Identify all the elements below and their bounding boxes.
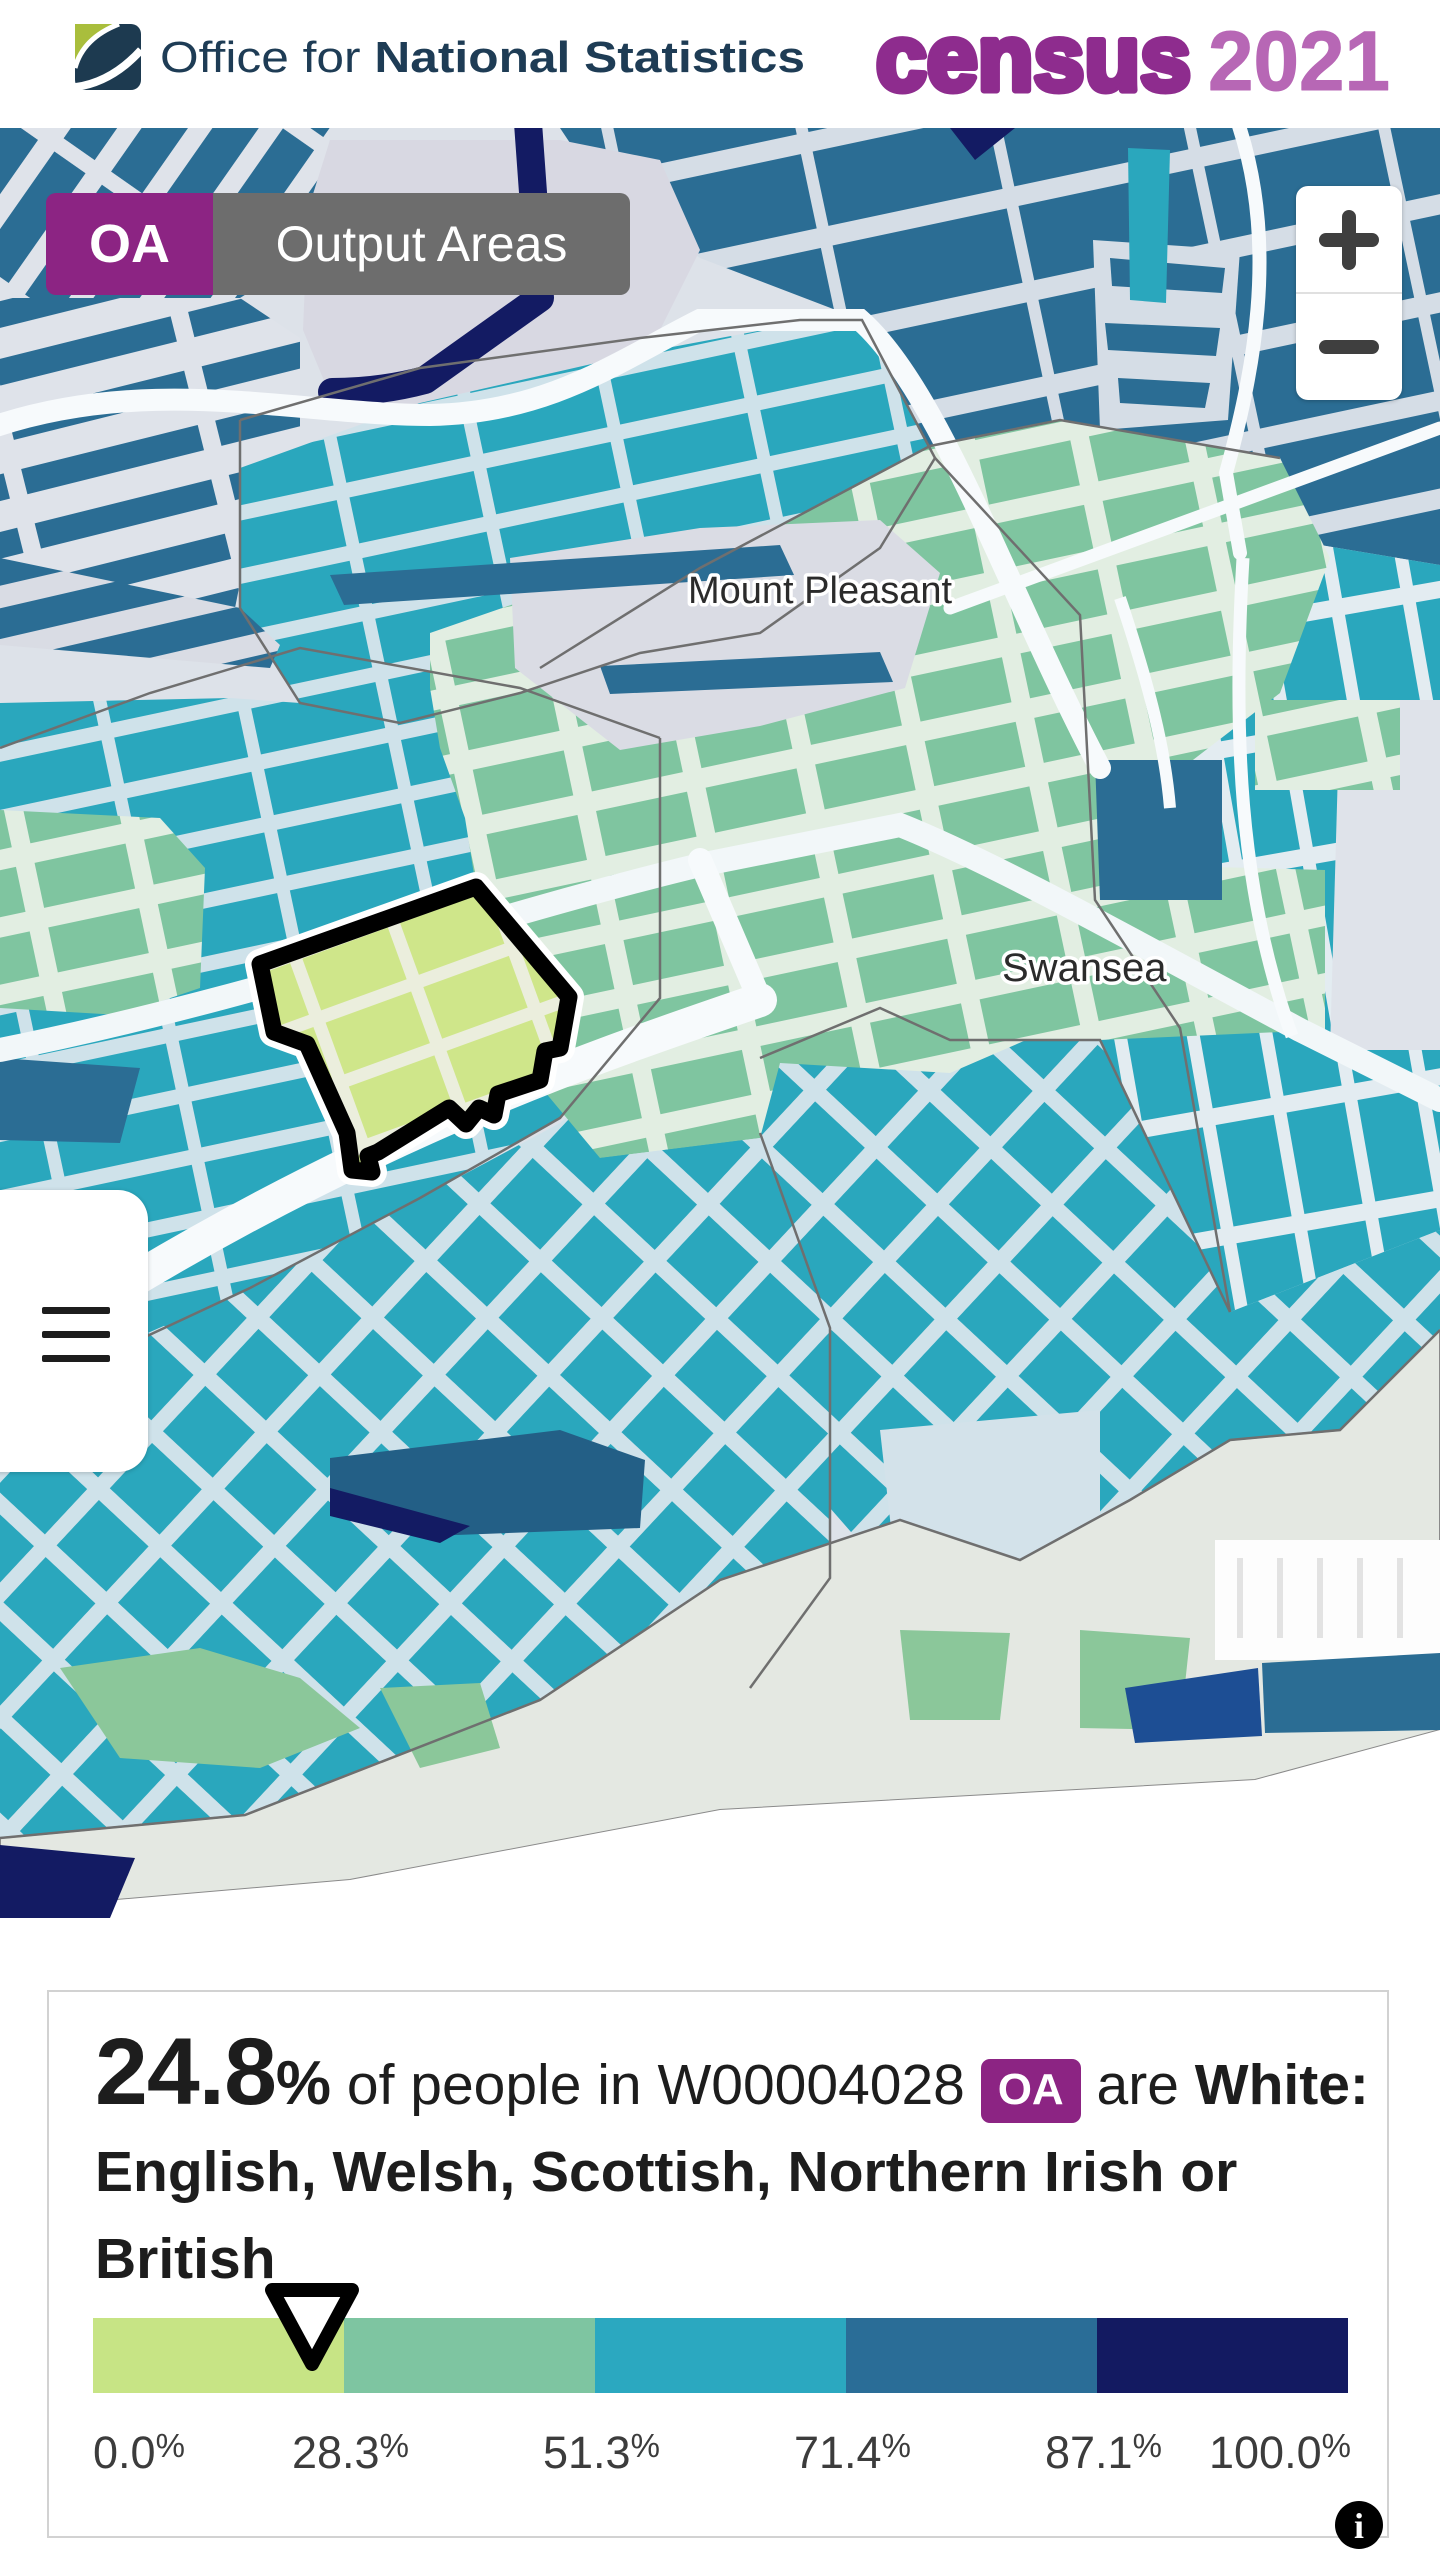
svg-text:census: census	[876, 5, 1191, 110]
svg-text:i: i	[1354, 2506, 1364, 2546]
svg-text:2021: 2021	[1208, 14, 1390, 108]
svg-text:Swansea: Swansea	[1002, 946, 1167, 990]
svg-text:Office for National Statistics: Office for National Statistics	[160, 33, 805, 82]
svg-text:Mount Pleasant: Mount Pleasant	[688, 570, 952, 612]
